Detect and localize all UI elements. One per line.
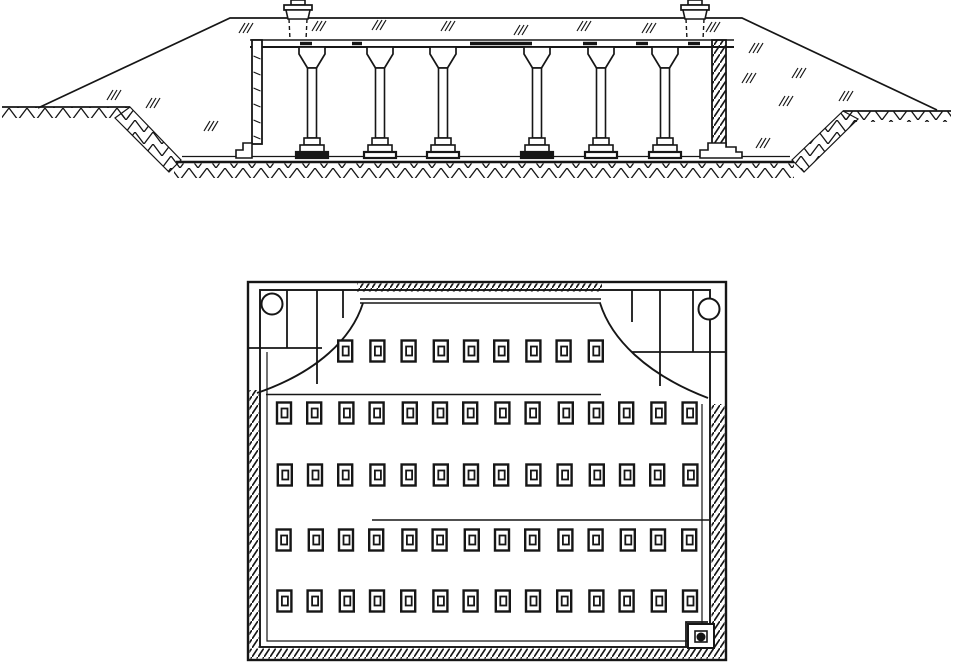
column-base [494,465,508,486]
column-base [619,403,633,424]
column-base [621,530,635,551]
column-capital [299,47,325,68]
excavation-slope-right [792,111,858,172]
column-base-step [649,152,681,158]
access-well-left [262,294,283,315]
sump-detail [686,622,714,648]
column [427,47,459,158]
column-base [650,465,664,486]
column-base [620,465,634,486]
column-base-inner [437,536,443,545]
column-base-inner [343,471,349,480]
left-wall-body [252,40,262,144]
column-base [370,465,384,486]
column-base-inner [313,536,319,545]
column-base [495,403,509,424]
section-view [2,0,951,178]
column-base [589,403,603,424]
column-shaft [533,68,542,138]
column-base [370,341,384,362]
column-base [369,530,383,551]
column-base-inner [531,597,537,606]
column-base-inner [594,409,600,418]
column-base [557,341,571,362]
column-base-step [521,152,553,158]
column-base [339,403,353,424]
column-base-inner [656,597,662,606]
column-base [308,465,322,486]
column-base [338,465,352,486]
column [364,47,396,158]
column-base-inner [344,597,350,606]
manhole-shaft-dashed [686,19,687,40]
column-base [589,591,603,612]
column-base-step [585,152,617,158]
manhole-shaft-dashed [703,19,704,40]
column-base-inner [593,536,599,545]
manhole-shaft-dashed [306,19,307,40]
column-shaft [376,68,385,138]
column-base [589,530,603,551]
column-base-inner [530,536,536,545]
column-base-inner [594,597,600,606]
column-base-inner [407,409,413,418]
column-base [620,591,634,612]
column-base-inner [343,347,349,356]
column-base [652,591,666,612]
manhole-neck [683,10,707,19]
column-base [526,465,540,486]
column-base-inner [469,347,475,356]
column-base-inner [282,409,288,418]
column-base-inner [500,597,506,606]
column-base [403,403,417,424]
column-base [557,591,571,612]
column-base [433,530,447,551]
column-base-inner [593,347,599,356]
column-base-inner [407,536,413,545]
column-base-inner [438,597,444,606]
column-base [651,530,665,551]
floor-hatch [174,164,794,179]
column-base-step [657,138,673,145]
column-base-inner [468,597,474,606]
column-base-inner [406,471,412,480]
column-base-inner [438,347,444,356]
column-base-inner [375,597,381,606]
column-base-inner [688,597,694,606]
column-base-step [529,138,545,145]
column-base-inner [469,471,475,480]
column [649,47,681,158]
column-base-inner [344,409,350,418]
column-base-inner [282,597,288,606]
column-base-step [372,138,388,145]
column-base [558,530,572,551]
manhole-neck [286,10,310,19]
column-base [464,591,478,612]
column-base [495,530,509,551]
column [585,47,617,158]
column-shaft [597,68,606,138]
ground-surface-right [843,111,951,122]
column-base [558,465,572,486]
column-base-inner [438,409,444,418]
column-shaft [439,68,448,138]
column-base-inner [625,536,631,545]
column-base-step [435,138,451,145]
column-base-inner [656,536,662,545]
column-base [433,591,447,612]
column-base-inner [500,409,506,418]
column-base [277,530,291,551]
plan-view [248,282,726,660]
column-base [307,403,321,424]
wall-hatch-right [712,404,725,649]
column-base [433,403,447,424]
column-base-inner [625,471,631,480]
column-base-inner [530,409,536,418]
column-base-step [296,152,328,158]
right-wall [700,40,742,158]
manhole-shaft-dashed [289,19,290,40]
column-base-step [364,152,396,158]
column-base-inner [438,471,444,480]
column-base-inner [531,347,537,356]
column-base [683,403,697,424]
column-shaft [308,68,317,138]
wall-hatch-bottom [250,649,725,659]
column-base [434,341,448,362]
right-wall-footing [700,143,742,158]
column-shaft [661,68,670,138]
column-base [651,403,665,424]
column-base-inner [468,409,474,418]
cistern-technical-drawing [0,0,953,671]
column-base-inner [375,347,381,356]
access-well-right [699,299,720,320]
column-base-inner [406,597,412,606]
column-base [278,465,292,486]
column-base [589,341,603,362]
ground-surface-right-hatch [843,111,951,122]
right-wall-body [712,40,726,146]
column-base-step [593,138,609,145]
column-base-inner [374,409,380,418]
column-base-step [304,138,320,145]
manhole-right [681,0,709,40]
ground-surface-left [2,107,130,118]
excavation-slope-left [115,107,181,172]
column-base [465,530,479,551]
column-base-inner [531,471,537,480]
column-base [463,403,477,424]
column-base-inner [312,409,318,418]
column-base-inner [624,597,630,606]
wall-hatch-left [250,390,259,648]
column-base [494,341,508,362]
column-base-inner [312,597,318,606]
column-base-step [427,152,459,158]
column-base [277,591,291,612]
column-base [309,530,323,551]
column-base [683,465,697,486]
column-base [370,403,384,424]
column-base [401,591,415,612]
column-base [340,591,354,612]
column-base-inner [563,536,569,545]
ground-surface-left-hatch [2,107,130,118]
column-base-inner [499,471,505,480]
left-wall-footing [236,143,252,158]
column-capital [524,47,550,68]
column-base-inner [624,409,630,418]
column-base-inner [687,536,693,545]
column-base [496,591,510,612]
column-base [370,591,384,612]
drawing-sheet [0,0,953,671]
column-base-inner [313,471,319,480]
column-base-inner [281,536,287,545]
column-base [434,465,448,486]
column-capital [588,47,614,68]
left-wall [236,40,262,158]
column-base [526,341,540,362]
column-base-inner [375,471,381,480]
column-base-inner [594,471,600,480]
column-base [277,403,291,424]
column-capital [430,47,456,68]
column-base-inner [562,597,568,606]
column-base-inner [344,536,350,545]
column-base [525,530,539,551]
column-capital [652,47,678,68]
column-base [526,403,540,424]
column-base [402,465,416,486]
column-base-inner [499,347,505,356]
column-base-inner [374,536,380,545]
column-base [339,530,353,551]
manhole-left [284,0,312,40]
column-base [402,341,416,362]
column-base-inner [406,347,412,356]
column-base-inner [282,471,288,480]
column-base [682,530,696,551]
column-base [308,591,322,612]
column-base-inner [688,471,694,480]
column-base [464,465,478,486]
column-base-inner [656,409,662,418]
column-base [402,530,416,551]
column-base-inner [500,536,506,545]
column-base-inner [561,347,567,356]
column-base [464,341,478,362]
column-base [683,591,697,612]
column-base-inner [469,536,475,545]
column-base [590,465,604,486]
column-base-inner [687,409,693,418]
column-base [338,341,352,362]
cistern-roof [250,40,734,47]
column [521,47,553,158]
column-base-inner [562,471,568,480]
column-base [526,591,540,612]
sump-drain-circle [697,633,705,641]
column [296,47,328,158]
column-base-row [338,341,603,362]
column-base-inner [563,409,569,418]
embankment-outline [38,18,937,110]
cistern-floor [174,157,794,179]
column-capital [367,47,393,68]
column-base [559,403,573,424]
column-base-inner [655,471,661,480]
